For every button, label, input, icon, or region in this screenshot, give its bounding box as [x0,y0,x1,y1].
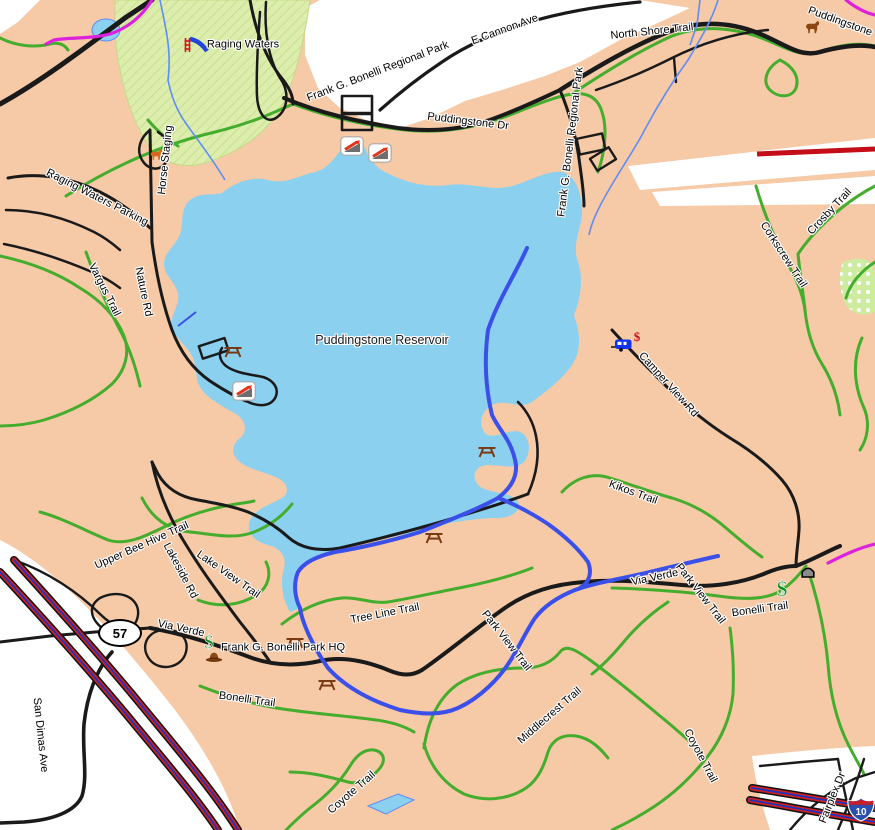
fee-dollar-icon-red[interactable]: $ [634,329,641,344]
boat-ramp-icon[interactable] [341,137,363,155]
route-shield-57: 57 [98,619,142,647]
boat-ramp-icon[interactable] [233,382,255,400]
fee-dollar-icon-green[interactable]: $ [777,576,788,601]
map-canvas[interactable]: $ $ $ Raging Waters E Cannon Ave North S… [0,0,875,830]
fee-dollar-icon-green[interactable]: $ [204,632,214,653]
label-raging-waters: Raging Waters [207,40,279,51]
tunnel-icon[interactable] [802,568,814,577]
route-57-number: 57 [113,626,127,641]
label-bonelli-park-hq: Frank G. Bonelli Park HQ [221,643,345,654]
interstate-10-shield: 10 [846,797,875,828]
boat-ramp-icon[interactable] [369,144,391,162]
interstate-10-number: 10 [855,807,867,818]
map-graphics: $ $ $ [0,0,875,830]
label-puddingstone-reservoir: Puddingstone Reservoir [315,334,448,347]
